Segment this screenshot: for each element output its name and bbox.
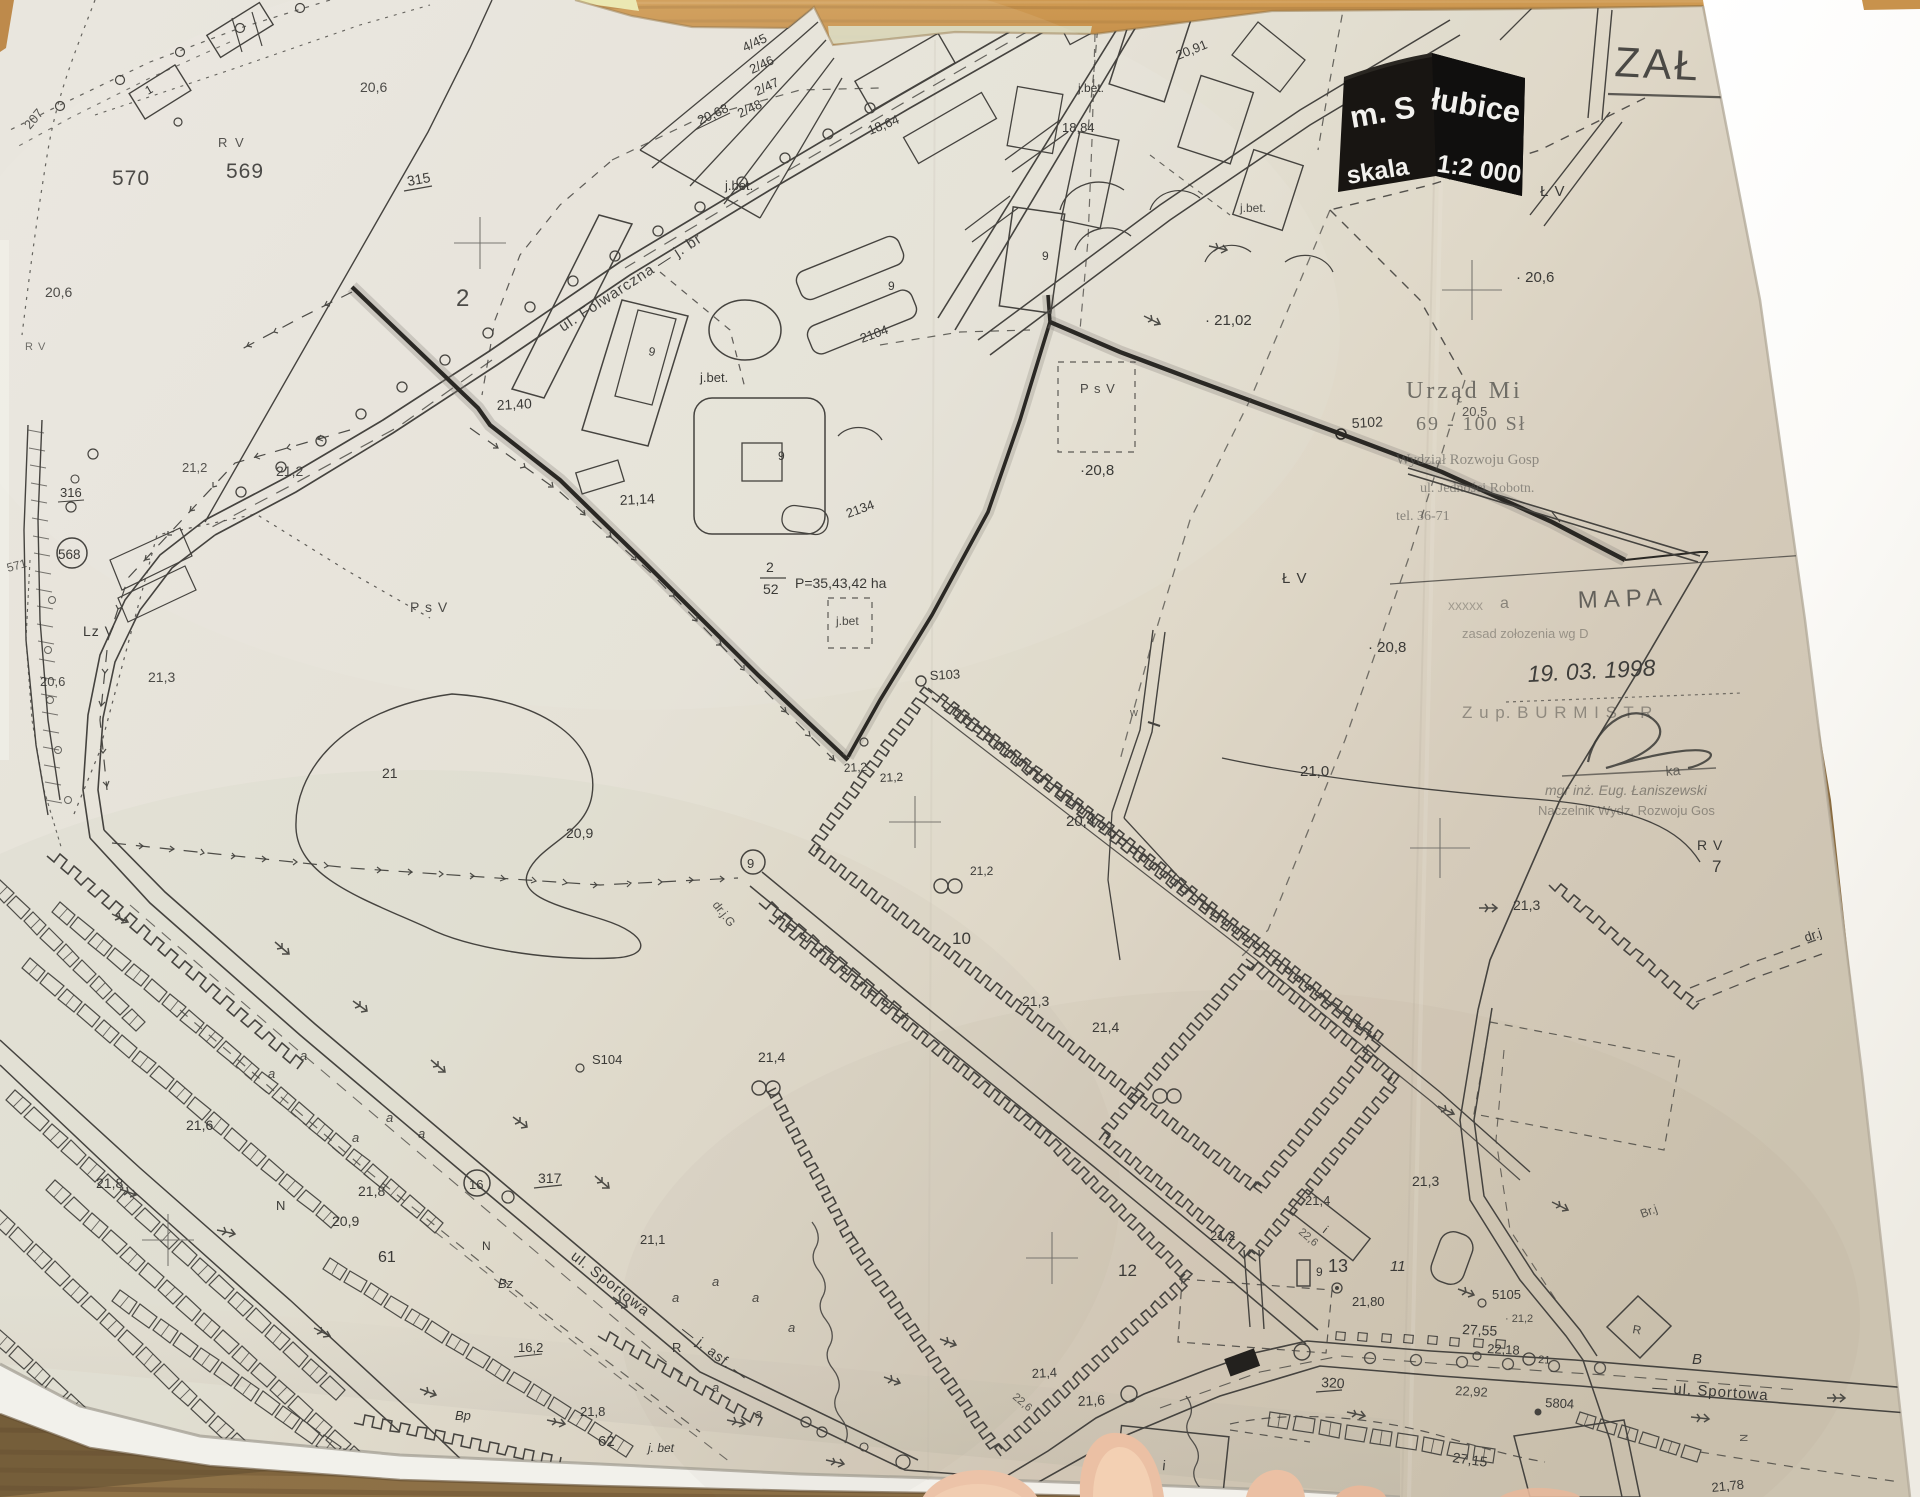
svg-text:a: a xyxy=(712,1380,719,1395)
svg-text:·20,8: ·20,8 xyxy=(1080,462,1114,479)
svg-text:316: 316 xyxy=(60,485,82,500)
svg-text:P s V: P s V xyxy=(1080,381,1116,396)
svg-text:21,1: 21,1 xyxy=(640,1232,665,1247)
svg-text:a: a xyxy=(1500,595,1509,612)
svg-text:a: a xyxy=(752,1290,759,1305)
svg-text:R: R xyxy=(672,1340,681,1355)
svg-text:61: 61 xyxy=(378,1249,396,1266)
svg-text:9: 9 xyxy=(1316,1265,1323,1279)
svg-text:N: N xyxy=(482,1239,491,1253)
svg-text:Ł V: Ł V xyxy=(1282,570,1308,587)
svg-text:21: 21 xyxy=(1538,1354,1551,1367)
svg-text:P=35,43,42 ha: P=35,43,42 ha xyxy=(795,575,887,591)
svg-text:a: a xyxy=(755,1406,762,1421)
svg-text:21,4: 21,4 xyxy=(758,1049,785,1065)
svg-text:ZAŁ: ZAŁ xyxy=(1614,38,1702,89)
svg-text:a: a xyxy=(352,1130,359,1145)
svg-text:Wydział Rozwoju Gosp: Wydział Rozwoju Gosp xyxy=(1396,452,1539,468)
svg-text:10: 10 xyxy=(952,929,971,948)
svg-text:w: w xyxy=(1129,707,1138,719)
svg-text:· 20,8: · 20,8 xyxy=(1368,639,1406,656)
svg-text:Lz V: Lz V xyxy=(83,623,115,639)
svg-text:21,6: 21,6 xyxy=(1077,1392,1105,1409)
svg-text:21,0: 21,0 xyxy=(1300,763,1329,780)
svg-text:P s V: P s V xyxy=(410,599,448,615)
svg-text:21,3: 21,3 xyxy=(148,669,175,685)
svg-text:20,5: 20,5 xyxy=(1462,404,1487,419)
svg-text:MAPA: MAPA xyxy=(1577,584,1668,614)
svg-text:2: 2 xyxy=(456,285,469,312)
svg-text:a: a xyxy=(418,1126,425,1141)
svg-text:20,9: 20,9 xyxy=(566,825,593,841)
svg-text:21,8: 21,8 xyxy=(96,1175,123,1191)
svg-text:S104: S104 xyxy=(592,1052,622,1067)
svg-text:21,2: 21,2 xyxy=(182,460,207,475)
svg-text:21,80: 21,80 xyxy=(1352,1294,1385,1309)
svg-text:21,4: 21,4 xyxy=(1305,1193,1330,1208)
svg-text:22,92: 22,92 xyxy=(1455,1383,1488,1400)
svg-text:13: 13 xyxy=(1328,1256,1348,1276)
svg-text:B: B xyxy=(1692,1351,1702,1368)
svg-text:21,4: 21,4 xyxy=(1092,1019,1119,1035)
svg-text:320: 320 xyxy=(1321,1374,1345,1391)
svg-text:9: 9 xyxy=(778,449,785,463)
svg-text:· 21,2: · 21,2 xyxy=(1505,1313,1533,1325)
svg-text:12: 12 xyxy=(1118,1261,1137,1280)
svg-text:xxxxx: xxxxx xyxy=(1448,597,1483,613)
svg-text:20,6: 20,6 xyxy=(360,79,387,95)
svg-text:22,18: 22,18 xyxy=(1487,1341,1520,1358)
svg-text:Ł V: Ł V xyxy=(1540,183,1566,200)
svg-text:2: 2 xyxy=(766,559,774,575)
svg-text:S103: S103 xyxy=(929,666,960,683)
svg-text:N: N xyxy=(1737,1434,1749,1442)
svg-text:21,8: 21,8 xyxy=(580,1404,605,1419)
svg-text:R V: R V xyxy=(25,341,46,353)
svg-text:j. bet: j. bet xyxy=(646,1441,675,1455)
svg-text:ka: ka xyxy=(1665,762,1681,779)
svg-text:21,2: 21,2 xyxy=(879,770,903,785)
svg-text:21,3: 21,3 xyxy=(1022,993,1049,1009)
svg-text:16,2: 16,2 xyxy=(518,1340,543,1355)
svg-text:a: a xyxy=(268,1066,275,1081)
svg-text:9: 9 xyxy=(1042,249,1049,263)
svg-text:9: 9 xyxy=(747,856,754,871)
svg-text:Bp: Bp xyxy=(455,1408,471,1423)
svg-text:· 21,02: · 21,02 xyxy=(1205,312,1252,329)
svg-text:j.bet.: j.bet. xyxy=(699,370,728,385)
svg-text:R V: R V xyxy=(1697,837,1723,853)
svg-text:21,4: 21,4 xyxy=(1031,1365,1057,1381)
svg-text:317: 317 xyxy=(538,1170,562,1186)
svg-text:a: a xyxy=(788,1320,795,1335)
svg-text:21,2: 21,2 xyxy=(276,463,303,479)
svg-text:21,3: 21,3 xyxy=(1412,1173,1439,1189)
svg-text:a: a xyxy=(300,1048,307,1063)
svg-text:570: 570 xyxy=(112,167,150,190)
svg-text:a: a xyxy=(712,1274,719,1289)
svg-text:21,8: 21,8 xyxy=(358,1183,385,1199)
svg-text:Naczelnik Wydz. Rozwoju Gos: Naczelnik Wydz. Rozwoju Gos xyxy=(1538,803,1715,818)
svg-text:5102: 5102 xyxy=(1351,413,1383,431)
svg-text:a: a xyxy=(672,1290,679,1305)
svg-text:21,40: 21,40 xyxy=(496,395,532,413)
svg-text:20,6: 20,6 xyxy=(45,284,72,300)
svg-text:16: 16 xyxy=(469,1177,483,1192)
svg-text:j.bet.: j.bet. xyxy=(1077,81,1104,95)
svg-text:mgr inż. Eug. Łaniszewski: mgr inż. Eug. Łaniszewski xyxy=(1545,782,1708,798)
svg-text:21,3: 21,3 xyxy=(1513,897,1540,913)
svg-text:zasad zołozenia wg D: zasad zołozenia wg D xyxy=(1462,626,1588,641)
svg-text:Bz: Bz xyxy=(498,1276,514,1291)
svg-text:5105: 5105 xyxy=(1492,1287,1521,1302)
svg-text:20,4: 20,4 xyxy=(1066,813,1095,830)
svg-text:a: a xyxy=(386,1110,393,1125)
svg-text:N: N xyxy=(276,1198,285,1213)
svg-text:7: 7 xyxy=(1712,857,1721,876)
svg-text:j.bet.: j.bet. xyxy=(1239,201,1266,215)
svg-text:568: 568 xyxy=(58,547,81,562)
svg-text:52: 52 xyxy=(763,581,779,597)
svg-text:27,55: 27,55 xyxy=(1462,1321,1498,1339)
svg-text:20,6: 20,6 xyxy=(40,674,65,689)
svg-text:21,2: 21,2 xyxy=(1210,1228,1235,1243)
svg-text:21: 21 xyxy=(382,765,398,781)
svg-text:569: 569 xyxy=(226,160,264,183)
svg-text:Z u p. B U R M I S T R: Z u p. B U R M I S T R xyxy=(1462,703,1653,722)
svg-text:9: 9 xyxy=(888,279,895,293)
svg-text:· 20,6: · 20,6 xyxy=(1516,269,1554,286)
svg-text:j.bet: j.bet xyxy=(835,614,859,628)
svg-text:tel. 36-71: tel. 36-71 xyxy=(1396,509,1450,524)
svg-text:21,6: 21,6 xyxy=(186,1117,213,1133)
svg-text:62: 62 xyxy=(598,1433,615,1450)
svg-text:21,2: 21,2 xyxy=(970,864,994,878)
svg-text:20,9: 20,9 xyxy=(332,1213,359,1229)
svg-text:5804: 5804 xyxy=(1545,1395,1575,1411)
svg-text:R V: R V xyxy=(218,135,246,150)
svg-text:11: 11 xyxy=(1390,1258,1406,1275)
